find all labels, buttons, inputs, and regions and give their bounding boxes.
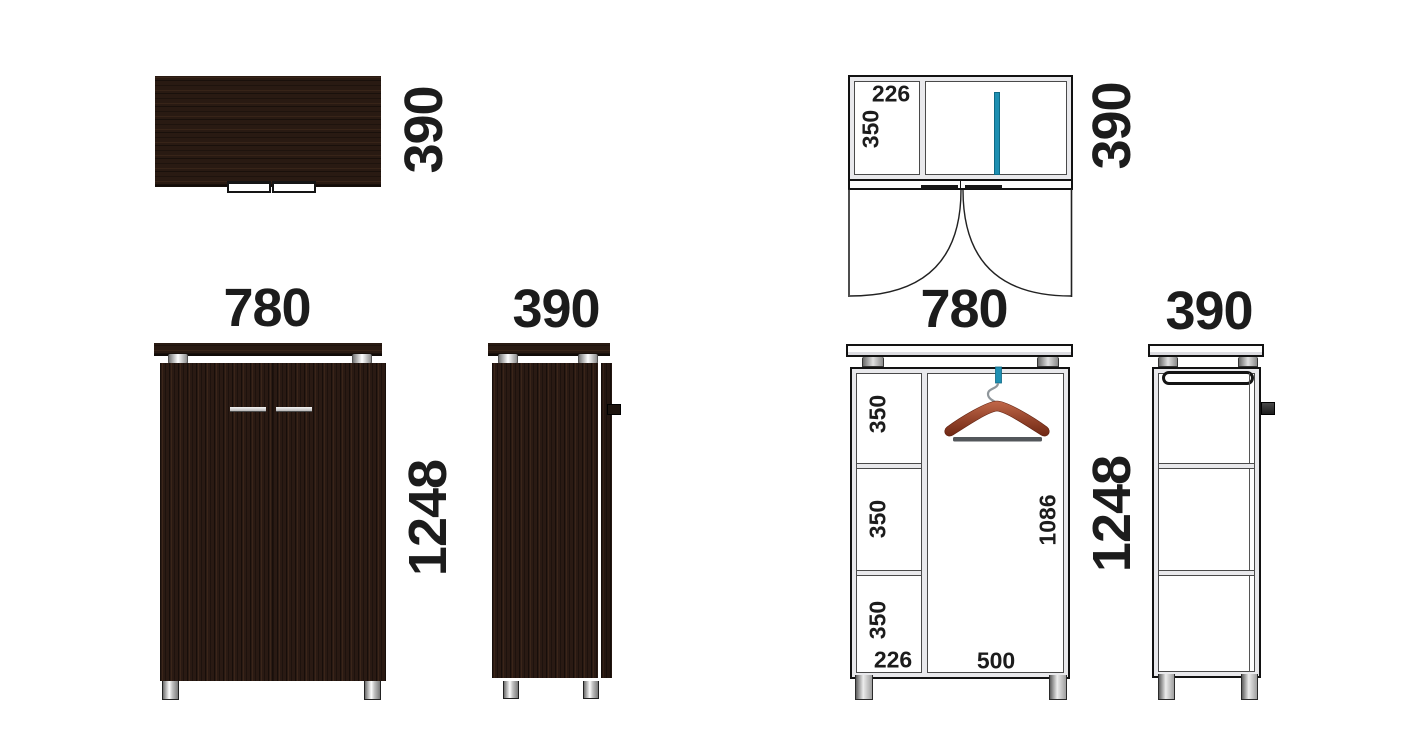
wood-front-top-board: [154, 343, 382, 356]
schematic-side-shelf-2: [1159, 570, 1254, 576]
wood-front-body: [160, 363, 386, 681]
dim-wood-front-height: 1248: [401, 460, 455, 576]
schematic-front-leg-left: [855, 675, 873, 700]
door-gap-line: [272, 363, 273, 681]
door-handle-top-mark-left: [227, 181, 271, 193]
wood-side-leg-right: [583, 681, 599, 699]
schematic-top-divider: [919, 81, 926, 175]
wood-side-leg-left: [503, 681, 519, 699]
wood-front-leg-left: [162, 681, 179, 700]
dim-front-compartment-width: 226: [874, 649, 912, 672]
hanging-rod-top-view: [994, 92, 1000, 175]
schematic-front-shelf-1: [857, 463, 921, 469]
dim-schematic-front-height: 1248: [1085, 456, 1139, 572]
dim-wood-top-depth: 390: [397, 86, 451, 173]
schematic-side-top-board: [1148, 344, 1264, 357]
hanging-rod-stub: [996, 367, 1002, 383]
dim-schematic-side-depth: 390: [1165, 284, 1252, 338]
schematic-side-body: [1152, 367, 1261, 678]
dim-shelf-3-height: 350: [867, 601, 890, 639]
schematic-side-spacer-right: [1238, 357, 1258, 367]
furniture-drawing-canvas: 390 780 1248 390 226 350 390 780: [0, 0, 1418, 738]
schematic-side-handle-tab: [1261, 402, 1275, 415]
door-handle-top-mark-right: [272, 181, 316, 193]
dim-wood-side-depth: 390: [512, 282, 599, 336]
door-handle-right: [276, 407, 312, 412]
schematic-side-leg-left: [1158, 674, 1175, 700]
dim-hanging-height: 1086: [1037, 494, 1060, 545]
dim-top-compartment-depth: 350: [860, 110, 883, 148]
schematic-side-shelf-1: [1159, 463, 1254, 469]
dim-shelf-2-height: 350: [867, 500, 890, 538]
rod-mount-side-view: [1162, 371, 1254, 385]
schematic-front-leg-right: [1049, 675, 1067, 700]
hanger-body: [945, 401, 1049, 436]
dim-wood-front-width: 780: [223, 281, 310, 335]
schematic-front-spacer-left: [862, 357, 884, 367]
schematic-side-interior: [1158, 373, 1255, 672]
schematic-side-spacer-left: [1158, 357, 1178, 367]
wood-front-leg-right: [364, 681, 381, 700]
schematic-front-shelf-2: [857, 570, 921, 576]
dim-top-compartment-width: 226: [872, 83, 910, 106]
dim-shelf-1-height: 350: [867, 395, 890, 433]
hanger-bar: [953, 437, 1042, 442]
wood-side-body: [492, 363, 598, 678]
hanger-hook: [988, 383, 998, 403]
dim-schematic-top-depth: 390: [1085, 82, 1139, 169]
wood-top-view: [155, 76, 381, 187]
dim-schematic-front-width: 780: [920, 282, 1007, 336]
wood-side-handle-tab: [607, 404, 621, 415]
hanger-icon: [925, 362, 1075, 448]
schematic-front-top-board: [846, 344, 1073, 357]
door-gap-top-view: [960, 181, 961, 188]
door-handle-left: [230, 407, 266, 412]
schematic-side-door-edge: [1249, 373, 1250, 672]
schematic-side-leg-right: [1241, 674, 1258, 700]
dim-hanging-width: 500: [977, 650, 1015, 673]
